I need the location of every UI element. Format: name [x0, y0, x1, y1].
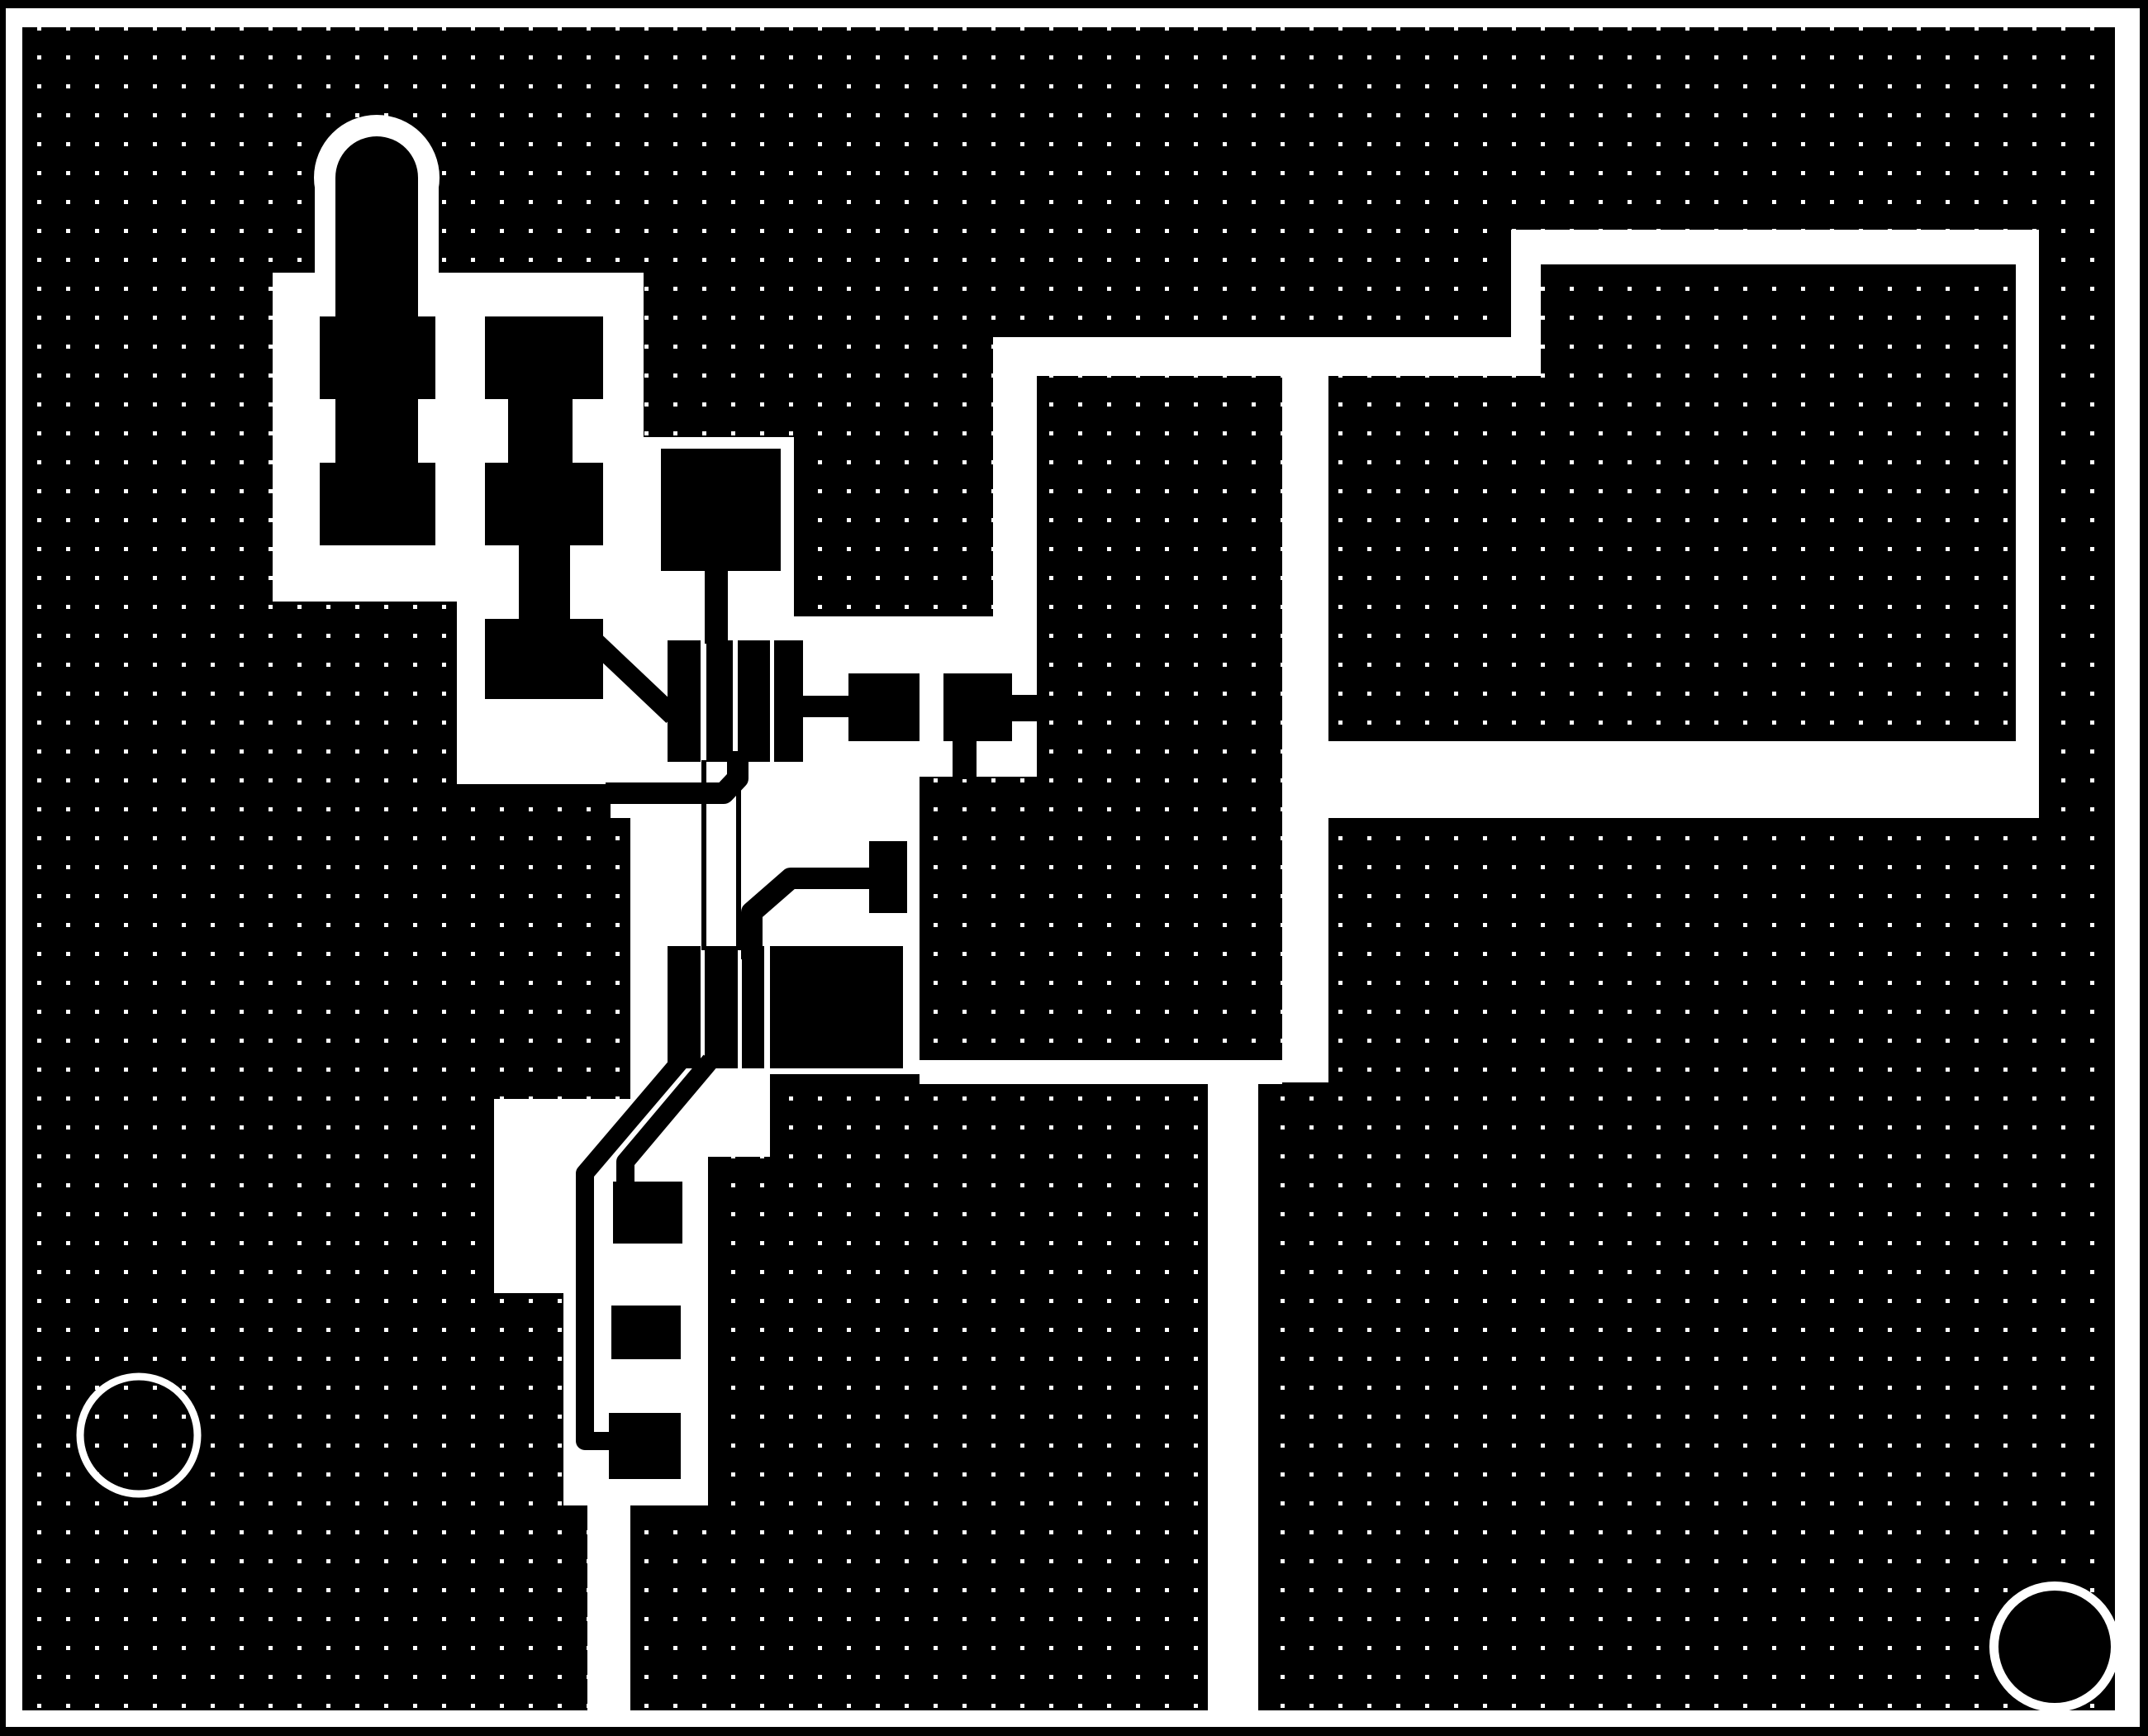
connector-pad-r-block	[485, 619, 603, 699]
square-pad-trace	[705, 571, 728, 644]
column-pad-3	[609, 1413, 681, 1479]
channel-right	[2016, 263, 2039, 818]
thin-link-2	[736, 760, 741, 950]
connector-pad-l-bot	[320, 463, 435, 545]
channel-band-2	[1325, 741, 2039, 818]
passive-stub-right	[1000, 695, 1043, 721]
hole-bottom-right-plug	[1998, 1591, 2111, 1703]
ic1-pad-3	[738, 640, 770, 762]
connector-pad-r-top	[485, 316, 603, 399]
channel-band-1	[993, 337, 1511, 376]
channel-bottom-right	[1208, 1078, 1258, 1712]
pcb-copper-layer	[0, 0, 2148, 1736]
ic2-pad-wide	[770, 946, 903, 1068]
connector-pad-r-waist	[508, 399, 573, 463]
connector-pad-r-stem	[519, 545, 570, 619]
channel-tall-left	[993, 337, 1037, 618]
ic2-pad-3	[742, 946, 764, 1068]
connector-pad-l-top	[320, 316, 435, 399]
border-gap-right	[2115, 8, 2140, 1727]
square-pad	[661, 449, 781, 571]
gap-column-block-a	[708, 1070, 770, 1157]
passive-pad-left	[848, 673, 920, 741]
border-gap-left	[6, 8, 22, 1727]
channel-top	[1541, 230, 2039, 264]
border-gap-bottom	[6, 1710, 2140, 1727]
connector-pad-r-bot	[485, 463, 603, 545]
ic1-pad-2	[706, 640, 733, 762]
border-gap-top	[6, 8, 2140, 27]
trace-to-passive	[803, 696, 848, 717]
ic1-pad-4	[774, 640, 803, 762]
trace-down-passive	[953, 741, 977, 779]
column-pad-1	[613, 1182, 682, 1244]
channel-bottom-left	[587, 1479, 630, 1712]
ic2-pad-2	[705, 946, 738, 1068]
ic1-pad-1	[668, 640, 701, 762]
channel-mid	[1282, 376, 1328, 1082]
ic2-pad-1	[668, 946, 701, 1068]
pcb-board	[0, 0, 2148, 1736]
channel-up	[1511, 230, 1541, 376]
column-pad-2	[611, 1306, 681, 1359]
thin-link-1	[701, 760, 706, 950]
